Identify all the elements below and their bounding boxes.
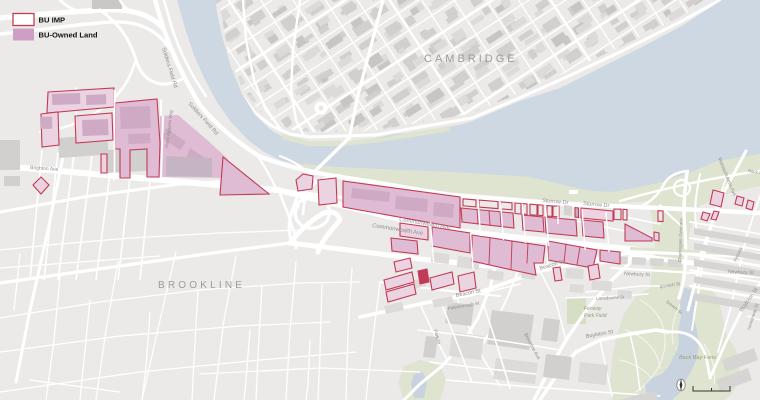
svg-text:Park Field: Park Field [584, 313, 607, 319]
svg-text:Fenway: Fenway [584, 306, 602, 312]
svg-text:Back Bay Fens: Back Bay Fens [679, 355, 716, 361]
svg-text:BU IMP: BU IMP [39, 16, 66, 25]
svg-text:CAMBRIDGE: CAMBRIDGE [424, 53, 518, 65]
svg-text:BROOKLINE: BROOKLINE [158, 280, 245, 291]
svg-text:BU-Owned Land: BU-Owned Land [39, 31, 98, 40]
